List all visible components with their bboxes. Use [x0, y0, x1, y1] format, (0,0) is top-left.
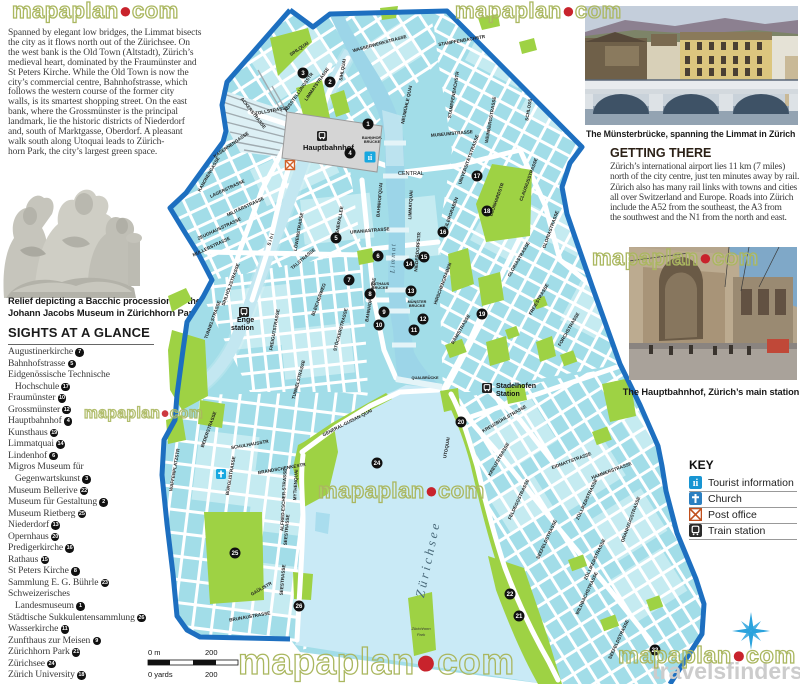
svg-text:19: 19	[479, 312, 486, 318]
svg-text:14: 14	[406, 262, 413, 268]
svg-text:0 yards: 0 yards	[148, 670, 173, 679]
svg-text:BRÜCKE: BRÜCKE	[409, 303, 426, 308]
svg-text:20: 20	[458, 420, 465, 426]
svg-text:22: 22	[507, 592, 514, 598]
svg-text:Station: Station	[496, 391, 520, 398]
svg-text:Park: Park	[417, 632, 426, 637]
svg-text:16: 16	[440, 230, 447, 236]
svg-text:Enge: Enge	[237, 317, 254, 324]
svg-text:ıi: ıi	[693, 478, 699, 489]
svg-text:17: 17	[474, 174, 481, 180]
svg-text:21: 21	[516, 614, 523, 620]
svg-text:ıi: ıi	[368, 153, 373, 162]
svg-text:200: 200	[205, 648, 218, 657]
svg-text:25: 25	[232, 551, 239, 557]
svg-text:QUAI-BRÜCKE: QUAI-BRÜCKE	[412, 375, 439, 380]
svg-text:15: 15	[421, 255, 428, 261]
svg-text:BRÜCKE: BRÜCKE	[372, 285, 389, 290]
svg-text:Limmat: Limmat	[388, 243, 397, 275]
svg-text:0 m: 0 m	[148, 648, 161, 657]
svg-text:station: station	[231, 325, 254, 332]
svg-text:CENTRAL: CENTRAL	[398, 171, 424, 177]
svg-text:BRÜCKE: BRÜCKE	[364, 139, 381, 144]
svg-text:200: 200	[205, 670, 218, 679]
svg-text:18: 18	[484, 209, 491, 215]
svg-text:Stadelhofen: Stadelhofen	[496, 383, 536, 390]
svg-text:Zürichhorn: Zürichhorn	[410, 626, 431, 631]
svg-text:26: 26	[296, 604, 303, 610]
svg-text:12: 12	[420, 317, 427, 323]
svg-text:13: 13	[408, 289, 415, 295]
svg-text:24: 24	[374, 461, 381, 467]
svg-text:11: 11	[411, 328, 418, 334]
svg-text:10: 10	[376, 323, 383, 329]
